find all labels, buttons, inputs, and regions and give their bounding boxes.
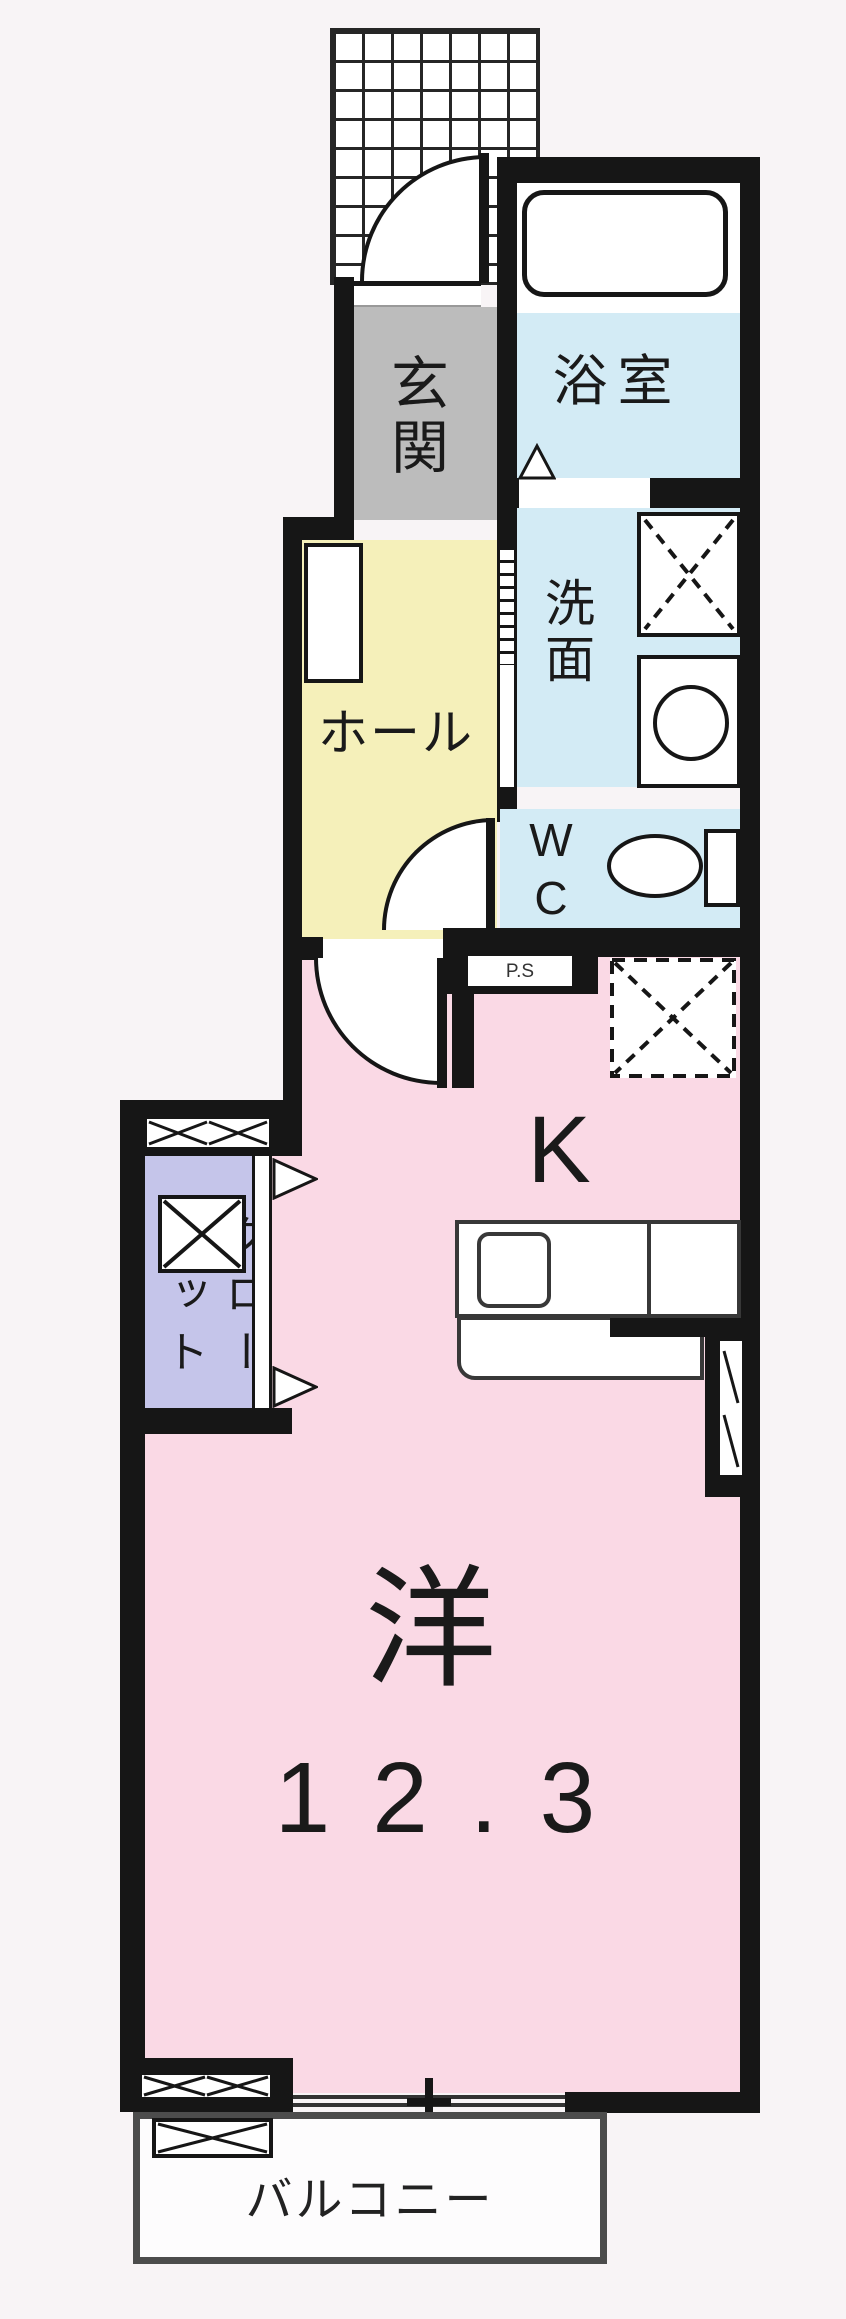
side-window	[720, 1341, 742, 1475]
left-outer-wall	[120, 1100, 145, 2112]
closet-top-window-x-icon	[147, 1119, 269, 1147]
closet-bottom-wall	[137, 1408, 292, 1434]
wc-label-w: W	[524, 814, 578, 866]
wc-label-c: C	[524, 872, 578, 924]
western-room-label: 洋	[358, 1552, 503, 1707]
washing-machine-pan	[637, 512, 741, 637]
floorplan: 玄関 浴室 ホール 洗面 W C	[0, 0, 846, 2319]
kitchen-entry-stub-wall	[452, 994, 474, 1088]
genkan-label: 玄関	[382, 322, 446, 512]
bathroom-left-wall	[497, 160, 517, 510]
hall-left-wall	[283, 517, 302, 1132]
genkan-step	[354, 281, 481, 307]
bathroom-label: 浴室	[545, 345, 690, 417]
closet-hatch-box	[158, 1195, 246, 1273]
pipe-space-box: P.S	[468, 956, 572, 986]
western-room-size: 12.3	[195, 1738, 675, 1858]
washbasin-unit	[637, 655, 741, 788]
bottom-right-wall	[565, 2092, 760, 2113]
washroom-left-wall-upper	[497, 508, 517, 547]
balcony-label: バルコニー	[200, 2168, 540, 2230]
closet-door-triangle-top-icon	[272, 1158, 318, 1200]
toilet-bowl-icon	[607, 834, 703, 898]
bottom-left-window-x-icon	[142, 2075, 270, 2097]
balcony-equipment-x-icon	[156, 2122, 269, 2154]
refrigerator-space	[610, 958, 736, 1078]
bathroom-door-icon	[518, 443, 556, 480]
kitchen-label: K	[505, 1096, 613, 1204]
kitchen-door-opening	[323, 939, 443, 958]
washing-machine-x-icon	[641, 516, 737, 633]
shoe-cabinet	[304, 543, 363, 683]
washroom-label: 洗面	[537, 558, 595, 708]
closet-door-track	[252, 1156, 272, 1408]
kitchen-sink-icon	[477, 1232, 551, 1308]
closet-door-triangle-bottom-icon	[272, 1366, 318, 1408]
entrance-door-leaf	[479, 153, 489, 283]
hall-label: ホール	[310, 703, 482, 763]
washroom-accordion-door-icon	[497, 547, 517, 665]
closet-top-window	[147, 1119, 269, 1147]
sliding-door-meeting-mark-horizontal	[407, 2098, 451, 2106]
kitchen-side-wall-horizontal	[610, 1318, 760, 1337]
wc-door-leaf	[486, 818, 495, 932]
genkan-left-wall	[334, 277, 354, 522]
hall-bottom-stub-wall	[302, 937, 323, 960]
washbasin-bowl-icon	[641, 659, 737, 784]
bathroom-top-wall	[497, 157, 760, 183]
toilet-tank-icon	[704, 829, 740, 907]
balcony-equipment-box	[152, 2118, 273, 2158]
bathroom-door-opening	[519, 478, 650, 508]
kitchen-counter-divider	[647, 1220, 651, 1318]
bathtub-icon	[522, 190, 728, 297]
bottom-left-window	[142, 2075, 270, 2097]
side-window-hatch-icon	[720, 1341, 742, 1475]
right-outer-wall	[740, 157, 760, 2113]
washroom-left-wall-hollow	[497, 665, 517, 787]
refrigerator-dashed-icon	[610, 958, 736, 1078]
closet-hatch-x-icon	[162, 1199, 242, 1269]
